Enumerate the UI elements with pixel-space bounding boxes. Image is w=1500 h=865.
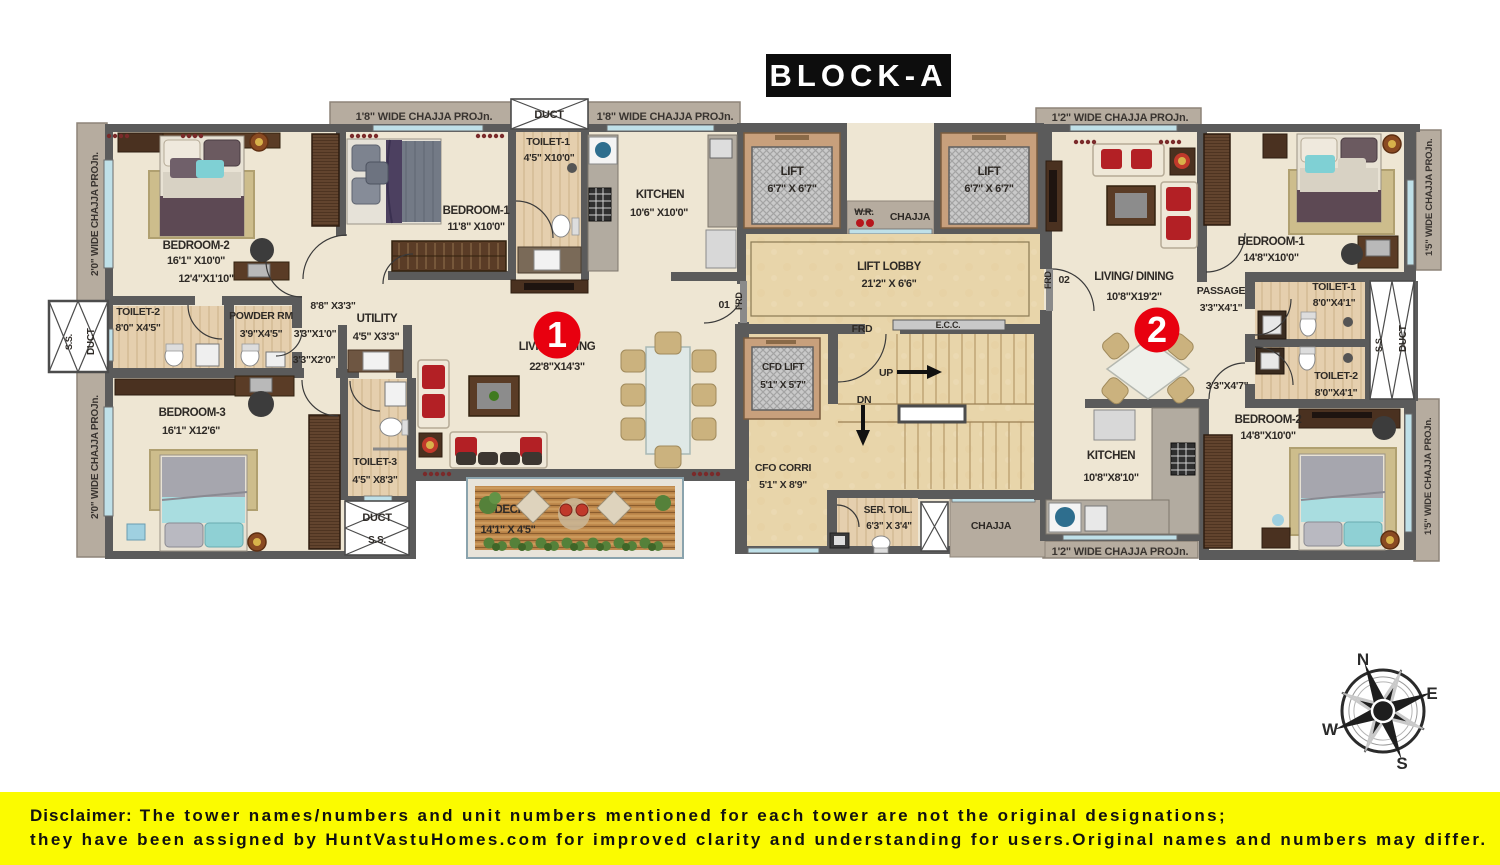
svg-text:TOILET-2: TOILET-2 bbox=[116, 306, 160, 318]
svg-text:BEDROOM-1: BEDROOM-1 bbox=[443, 205, 511, 217]
svg-text:22'8"X14'3": 22'8"X14'3" bbox=[529, 361, 584, 373]
svg-text:10'8"X19'2": 10'8"X19'2" bbox=[1106, 291, 1161, 303]
svg-text:4'5" X8'3": 4'5" X8'3" bbox=[352, 474, 398, 486]
svg-text:CFD LIFT: CFD LIFT bbox=[762, 362, 804, 373]
svg-text:N: N bbox=[1357, 650, 1369, 669]
svg-text:3'3"X1'0": 3'3"X1'0" bbox=[294, 328, 337, 340]
svg-text:DN: DN bbox=[857, 394, 872, 406]
svg-text:S: S bbox=[1396, 754, 1407, 773]
svg-text:16'1" X12'6": 16'1" X12'6" bbox=[162, 425, 220, 437]
svg-text:CHAJJA: CHAJJA bbox=[971, 520, 1012, 532]
svg-text:PASSAGE: PASSAGE bbox=[1197, 285, 1246, 297]
svg-text:UP: UP bbox=[879, 367, 893, 379]
svg-text:DUCT: DUCT bbox=[86, 328, 97, 355]
svg-text:TOILET-3: TOILET-3 bbox=[353, 456, 397, 468]
svg-text:10'6" X10'0": 10'6" X10'0" bbox=[630, 207, 688, 219]
svg-text:FRD: FRD bbox=[734, 292, 744, 310]
svg-text:KITCHEN: KITCHEN bbox=[636, 189, 684, 201]
svg-text:LIFT LOBBY: LIFT LOBBY bbox=[857, 261, 921, 273]
svg-text:11'8" X10'0": 11'8" X10'0" bbox=[447, 221, 505, 233]
svg-text:3'3"X4'1": 3'3"X4'1" bbox=[1200, 302, 1243, 314]
svg-text:10'8"X8'10": 10'8"X8'10" bbox=[1083, 472, 1138, 484]
svg-text:16'1" X10'0": 16'1" X10'0" bbox=[167, 255, 225, 267]
svg-text:1'8" WIDE CHAJJA PROJn.: 1'8" WIDE CHAJJA PROJn. bbox=[356, 111, 493, 123]
svg-text:3'9"X4'5": 3'9"X4'5" bbox=[240, 328, 283, 340]
svg-text:BEDROOM-2: BEDROOM-2 bbox=[163, 240, 230, 252]
svg-text:DUCT: DUCT bbox=[1398, 325, 1409, 352]
svg-text:02: 02 bbox=[1058, 274, 1070, 286]
svg-text:21'2" X 6'6": 21'2" X 6'6" bbox=[862, 278, 917, 290]
svg-text:1: 1 bbox=[547, 314, 567, 355]
svg-text:TOILET-2: TOILET-2 bbox=[1314, 370, 1358, 382]
svg-text:S.S.: S.S. bbox=[368, 535, 386, 546]
svg-text:8'0"X4'1": 8'0"X4'1" bbox=[1315, 387, 1358, 399]
svg-text:1'5" WIDE CHAJJA PROJn.: 1'5" WIDE CHAJJA PROJn. bbox=[1424, 139, 1435, 256]
svg-text:3'3"X2'0": 3'3"X2'0" bbox=[293, 354, 336, 366]
svg-text:8'0"X4'1": 8'0"X4'1" bbox=[1313, 297, 1356, 309]
svg-text:DUCT: DUCT bbox=[362, 512, 392, 524]
svg-text:KITCHEN: KITCHEN bbox=[1087, 450, 1135, 462]
svg-text:LIFT: LIFT bbox=[978, 166, 1001, 178]
svg-text:DUCT: DUCT bbox=[534, 109, 564, 121]
svg-text:01: 01 bbox=[718, 299, 730, 311]
svg-text:CHAJJA: CHAJJA bbox=[890, 211, 931, 223]
svg-text:S.S: S.S bbox=[1374, 338, 1384, 352]
svg-text:6'7" X 6'7": 6'7" X 6'7" bbox=[964, 183, 1013, 195]
svg-text:4'5" X10'0": 4'5" X10'0" bbox=[524, 152, 575, 164]
svg-text:BEDROOM-1: BEDROOM-1 bbox=[1238, 236, 1306, 248]
svg-text:FRD: FRD bbox=[852, 323, 873, 335]
svg-text:S.S.: S.S. bbox=[64, 334, 74, 350]
svg-text:BEDROOM-2: BEDROOM-2 bbox=[1235, 414, 1302, 426]
svg-text:1'5" WIDE CHAJJA PROJn.: 1'5" WIDE CHAJJA PROJn. bbox=[1423, 418, 1434, 535]
svg-text:LIFT: LIFT bbox=[781, 166, 804, 178]
svg-text:TOILET-1: TOILET-1 bbox=[1312, 281, 1356, 293]
svg-text:E: E bbox=[1426, 684, 1437, 703]
svg-text:8'0" X4'5": 8'0" X4'5" bbox=[115, 322, 161, 334]
svg-text:LIVING/ DINING: LIVING/ DINING bbox=[1094, 271, 1174, 283]
svg-text:2: 2 bbox=[1147, 309, 1167, 350]
svg-text:W: W bbox=[1322, 720, 1339, 739]
svg-text:6'7" X 6'7": 6'7" X 6'7" bbox=[767, 183, 816, 195]
svg-text:E.C.C.: E.C.C. bbox=[936, 320, 961, 330]
svg-text:1'8" WIDE CHAJJA PROJn.: 1'8" WIDE CHAJJA PROJn. bbox=[597, 111, 734, 123]
svg-text:BEDROOM-3: BEDROOM-3 bbox=[159, 407, 226, 419]
svg-text:CFO CORRI: CFO CORRI bbox=[755, 462, 812, 474]
svg-text:12'4"X1'10": 12'4"X1'10" bbox=[178, 273, 233, 285]
svg-text:5'1" X 5'7": 5'1" X 5'7" bbox=[760, 380, 806, 391]
svg-text:14'1" X 4'5": 14'1" X 4'5" bbox=[481, 524, 536, 536]
svg-text:14'8"X10'0": 14'8"X10'0" bbox=[1243, 252, 1298, 264]
svg-text:8'8" X3'3": 8'8" X3'3" bbox=[310, 300, 356, 312]
svg-text:POWDER RM: POWDER RM bbox=[229, 310, 293, 322]
svg-text:3'3"X4'7": 3'3"X4'7" bbox=[1206, 380, 1249, 392]
svg-text:UTILITY: UTILITY bbox=[357, 313, 398, 325]
svg-text:5'1" X 8'9": 5'1" X 8'9" bbox=[759, 479, 807, 491]
svg-text:2'0" WIDE CHAJJA PROJn.: 2'0" WIDE CHAJJA PROJn. bbox=[90, 152, 101, 276]
svg-text:W.R.: W.R. bbox=[854, 207, 873, 218]
svg-text:4'5" X3'3": 4'5" X3'3" bbox=[353, 331, 400, 343]
svg-text:2'0" WIDE CHAJJA PROJn.: 2'0" WIDE CHAJJA PROJn. bbox=[90, 395, 101, 519]
svg-text:1'2" WIDE CHAJJA PROJn.: 1'2" WIDE CHAJJA PROJn. bbox=[1052, 546, 1189, 558]
svg-text:FRD: FRD bbox=[1043, 271, 1053, 289]
svg-text:SER. TOIL.: SER. TOIL. bbox=[864, 505, 913, 516]
svg-text:TOILET-1: TOILET-1 bbox=[526, 136, 570, 148]
svg-text:1'2" WIDE CHAJJA PROJn.: 1'2" WIDE CHAJJA PROJn. bbox=[1052, 112, 1189, 124]
svg-text:14'8"X10'0": 14'8"X10'0" bbox=[1240, 430, 1295, 442]
svg-text:6'3" X 3'4": 6'3" X 3'4" bbox=[866, 521, 912, 532]
